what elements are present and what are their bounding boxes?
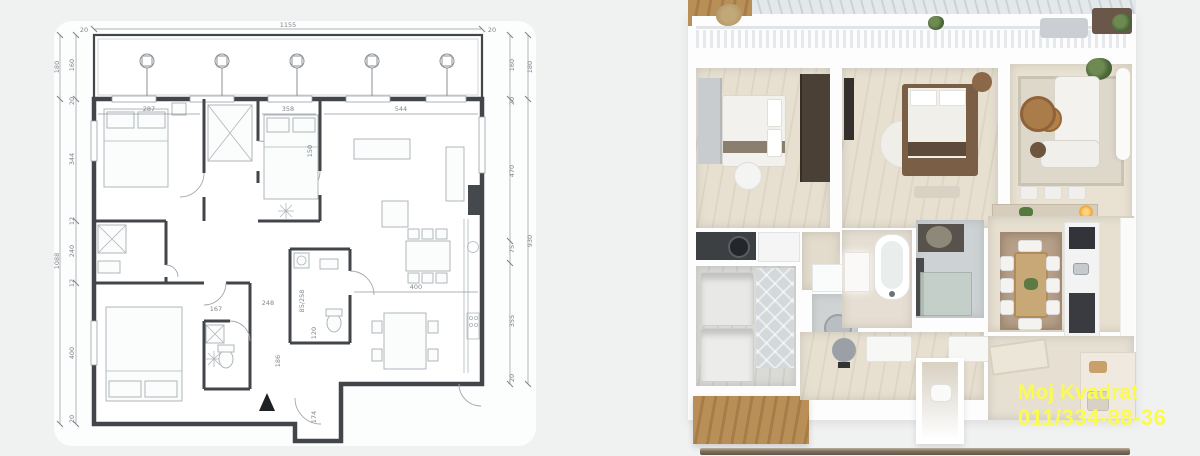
- svg-text:20: 20: [508, 374, 516, 382]
- svg-text:248: 248: [262, 299, 274, 307]
- svg-text:174: 174: [310, 411, 318, 423]
- kitchen-sink: [1073, 263, 1089, 275]
- entry-vestibule: [916, 358, 964, 444]
- svg-text:287: 287: [143, 105, 155, 113]
- svg-text:358: 358: [282, 105, 294, 113]
- floorplan-card: 1155 20 20 180 1088 160 20 344 12 240 12…: [54, 21, 536, 446]
- bed: [722, 95, 786, 167]
- pillow: [767, 129, 782, 157]
- svg-text:544: 544: [395, 105, 407, 113]
- dim-top-total: 1155: [280, 21, 297, 29]
- curtain: [1116, 68, 1130, 160]
- desk-item: [1089, 361, 1107, 373]
- stool: [1020, 186, 1038, 200]
- svg-text:85/258: 85/258: [298, 290, 306, 313]
- side-table: [1030, 142, 1046, 158]
- render-bedroom-1: [696, 68, 830, 228]
- svg-text:355: 355: [508, 315, 516, 327]
- pillow: [939, 90, 966, 106]
- gray-pouf: [832, 338, 856, 362]
- svg-text:180: 180: [526, 61, 534, 73]
- chair: [1000, 300, 1014, 315]
- svg-text:12: 12: [68, 279, 76, 287]
- door-mat: [838, 362, 850, 368]
- svg-text:167: 167: [210, 305, 222, 313]
- bathtub: [874, 234, 910, 300]
- chair: [1000, 256, 1014, 271]
- dining-room: [988, 216, 1134, 332]
- svg-text:120: 120: [310, 327, 318, 339]
- utility-closet: [696, 232, 756, 260]
- svg-text:344: 344: [68, 153, 76, 165]
- stool: [1068, 186, 1086, 200]
- svg-text:930: 930: [526, 235, 534, 247]
- svg-text:20: 20: [68, 415, 76, 423]
- bathroom-shower: [916, 220, 984, 318]
- kitchen-run: [1064, 222, 1100, 340]
- floorplan-drawing: 1155 20 20 180 1088 160 20 344 12 240 12…: [54, 21, 536, 446]
- centerpiece: [1024, 278, 1038, 290]
- real-estate-listing-image: { "window": { "background": "#f0f1f1" },…: [0, 0, 1200, 456]
- vanity: [844, 252, 870, 292]
- svg-text:400: 400: [410, 283, 422, 291]
- pillow: [910, 90, 937, 106]
- svg-text:160: 160: [508, 59, 516, 71]
- watermark-brand: Moj Kvadrat: [1018, 380, 1178, 405]
- render-bedroom-2: [842, 68, 998, 228]
- accent-chair: [972, 72, 992, 92]
- chair: [1046, 300, 1060, 315]
- svg-text:150: 150: [306, 145, 314, 157]
- svg-text:240: 240: [68, 245, 76, 257]
- storage-unit: [758, 232, 800, 262]
- faucet: [889, 291, 895, 297]
- balcony: [692, 16, 1132, 56]
- svg-text:1088: 1088: [54, 253, 61, 270]
- svg-text:20: 20: [508, 97, 516, 105]
- balcony-sofa: [1040, 18, 1088, 38]
- chair: [1046, 256, 1060, 271]
- svg-text:400: 400: [68, 347, 76, 359]
- pillow: [767, 99, 782, 127]
- svg-text:186: 186: [274, 355, 282, 367]
- dry-plant-icon: [716, 4, 742, 26]
- svg-text:75: 75: [508, 245, 516, 253]
- kitchen-shelves: [1069, 227, 1095, 249]
- pergola-slats: [752, 0, 1136, 14]
- render-base-edge: [700, 448, 1130, 455]
- dining-table: [1014, 252, 1048, 318]
- render-bedroom-3: [696, 266, 796, 386]
- tv-panel: [844, 78, 854, 140]
- quilted-wardrobe: [756, 268, 794, 368]
- dim-corner-right: 20: [488, 26, 496, 34]
- washing-machine: [728, 236, 750, 258]
- entry-mat: [930, 384, 952, 402]
- stone-sink: [926, 226, 952, 248]
- bed-runner: [908, 142, 966, 156]
- bathroom-tub-room: [842, 230, 912, 328]
- bed: [700, 272, 754, 326]
- wicker-chair: [1020, 96, 1056, 132]
- glass-shower: [920, 272, 972, 316]
- dim-corner-left: 20: [80, 26, 88, 34]
- dark-vanity: [918, 224, 964, 252]
- svg-text:12: 12: [68, 217, 76, 225]
- runner-rug: [988, 338, 1050, 376]
- round-pouf: [734, 162, 762, 190]
- bed: [700, 328, 754, 382]
- sofa-chaise: [1040, 140, 1100, 168]
- lower-terrace-wood: [693, 396, 809, 444]
- watermark-phone: 011/334-88-36: [1018, 405, 1178, 431]
- watermark: Moj Kvadrat 011/334-88-36: [1018, 380, 1178, 432]
- chair: [1018, 318, 1042, 330]
- svg-text:20: 20: [68, 97, 76, 105]
- kitchen-tall-cabinets: [1120, 218, 1135, 340]
- render-living-room: [1010, 64, 1132, 232]
- chair: [1000, 278, 1014, 293]
- kitchen-appliance: [1069, 293, 1095, 333]
- bed-frame: [902, 84, 978, 176]
- stool: [1044, 186, 1062, 200]
- chair: [1046, 278, 1060, 293]
- hall-cabinet: [866, 336, 912, 362]
- svg-text:470: 470: [508, 165, 516, 177]
- dark-wardrobe: [800, 74, 830, 182]
- bench: [914, 186, 960, 198]
- bathtub-basin: [881, 241, 903, 289]
- svg-text:180: 180: [54, 61, 61, 73]
- terrace: [94, 35, 482, 99]
- chair: [1018, 240, 1042, 252]
- wardrobe: [698, 78, 722, 164]
- svg-text:160: 160: [68, 59, 76, 71]
